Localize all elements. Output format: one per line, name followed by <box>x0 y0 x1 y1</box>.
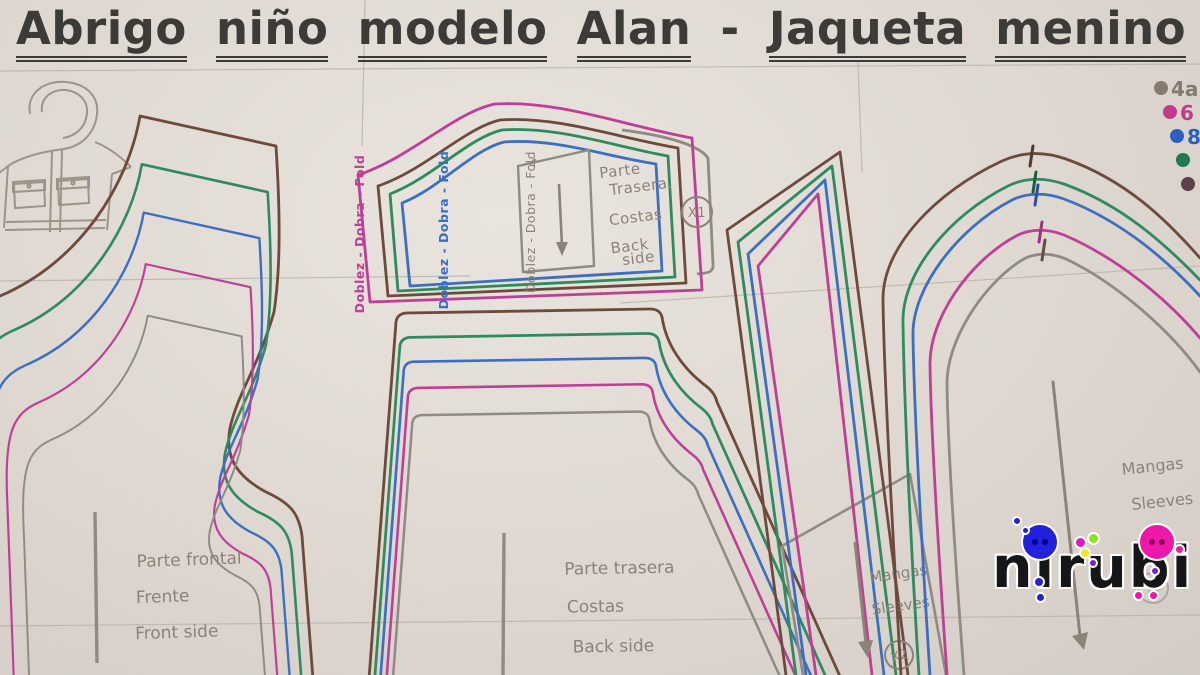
logo-dot-pink-under <box>1148 590 1159 601</box>
logo-dot-purple-under <box>1150 566 1160 576</box>
size-dot-8 <box>1170 129 1184 143</box>
size-legend: 4a 6 8 <box>1154 77 1200 191</box>
legend-item: 6 <box>1163 101 1194 125</box>
logo-dot-blue-under <box>1033 576 1045 588</box>
logo-dot-purple <box>1088 558 1098 568</box>
strip-grain-line <box>855 542 866 644</box>
size-label-6: 6 <box>1180 101 1194 125</box>
strip-name-en: Sleeves <box>871 593 931 619</box>
size-dot-10 <box>1176 153 1190 167</box>
back-outline-size8 <box>377 358 831 675</box>
title-word: modelo <box>358 3 548 62</box>
title-hyphen: - <box>720 2 739 55</box>
legend-item: 4a <box>1154 77 1198 101</box>
yoke-grain-arrowhead <box>556 242 568 256</box>
back-name-es: Parte trasera <box>564 558 675 580</box>
front-outline-size4a <box>23 316 268 675</box>
logo-pink-button-icon <box>1138 523 1176 561</box>
front-piece: Parte frontal Frente Front side <box>0 116 314 675</box>
back-outline-size4a <box>387 412 814 675</box>
yoke-fold-label-blue: Doblez - Dobra - Fold <box>436 151 451 310</box>
title-word: Abrigo <box>16 3 187 62</box>
sewing-pattern-sheet: Doblez - Dobra - Fold Doblez - Dobra - F… <box>0 0 1200 675</box>
legend-item <box>1181 177 1195 191</box>
yoke-name-pt: Costas <box>608 205 663 229</box>
front-name-es: Parte frontal <box>136 548 242 572</box>
yoke-grain-line <box>559 184 562 246</box>
yoke-quantity: X1 <box>688 206 706 221</box>
pattern-title: Abrigo niño modelo Alan - Jaqueta menino… <box>16 2 1200 62</box>
logo-dot-blue-under <box>1035 592 1046 603</box>
yoke-fold-label-magenta: Doblez - Dobra - Fold <box>352 155 367 314</box>
front-name-en: Front side <box>135 621 219 644</box>
size-dot-6 <box>1163 105 1177 119</box>
button-hole-icon <box>1159 539 1165 545</box>
sleeve-grain-arrowhead <box>1072 632 1088 650</box>
logo-dot-blue-small <box>1012 516 1022 526</box>
back-name-pt: Costas <box>567 597 625 618</box>
logo-dot-lime <box>1087 532 1100 545</box>
yoke-fold-arrow-icon: ↑ <box>529 157 540 172</box>
back-name-en: Back side <box>572 636 654 657</box>
legend-item: 8 <box>1170 125 1200 149</box>
yoke-fold-label-gray: Doblez - Dobra - Fold <box>523 151 538 293</box>
button-hole-icon <box>1032 539 1038 545</box>
front-grain-line <box>95 512 97 663</box>
title-word: Jaqueta <box>769 3 966 62</box>
jacket-sketch <box>0 82 131 232</box>
logo-dot-pink-under <box>1133 590 1144 601</box>
size-label-4a: 4a <box>1171 77 1198 101</box>
sleeve-name-es: Mangas <box>1121 453 1185 478</box>
front-name-pt: Frente <box>136 586 190 608</box>
back-grain-line <box>503 533 504 675</box>
size-label-8: 8 <box>1187 125 1200 149</box>
yoke-name-en-2: side <box>621 247 656 269</box>
button-hole-icon <box>1042 539 1048 545</box>
logo-dot-yellow <box>1079 547 1091 559</box>
brand-logo: nirubi <box>988 518 1200 633</box>
size-dot-12 <box>1181 177 1195 191</box>
title-word: Alan <box>577 3 692 62</box>
logo-dot-blue-small <box>1021 526 1030 535</box>
sleeve-name-en: Sleeves <box>1130 489 1194 514</box>
logo-dot-pink-side <box>1174 544 1185 555</box>
strip-name-es: Mangas <box>868 561 928 587</box>
back-outline-size6 <box>382 384 823 675</box>
title-word: menino <box>995 3 1186 62</box>
button-hole-icon <box>1149 539 1155 545</box>
size-dot-4a <box>1154 81 1168 95</box>
title-word: niño <box>216 3 328 62</box>
sleeve-cap-notches <box>1030 146 1045 260</box>
legend-item <box>1176 153 1190 167</box>
